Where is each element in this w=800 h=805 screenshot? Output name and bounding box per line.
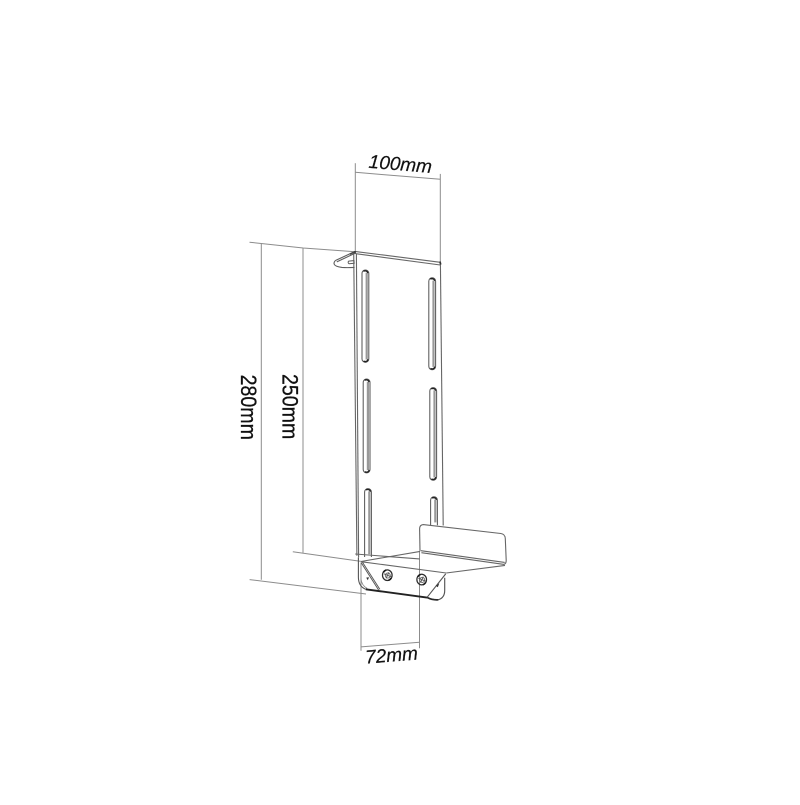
svg-text:250mm: 250mm: [277, 374, 302, 439]
svg-text:72mm: 72mm: [364, 643, 418, 668]
svg-text:280mm: 280mm: [236, 375, 261, 440]
